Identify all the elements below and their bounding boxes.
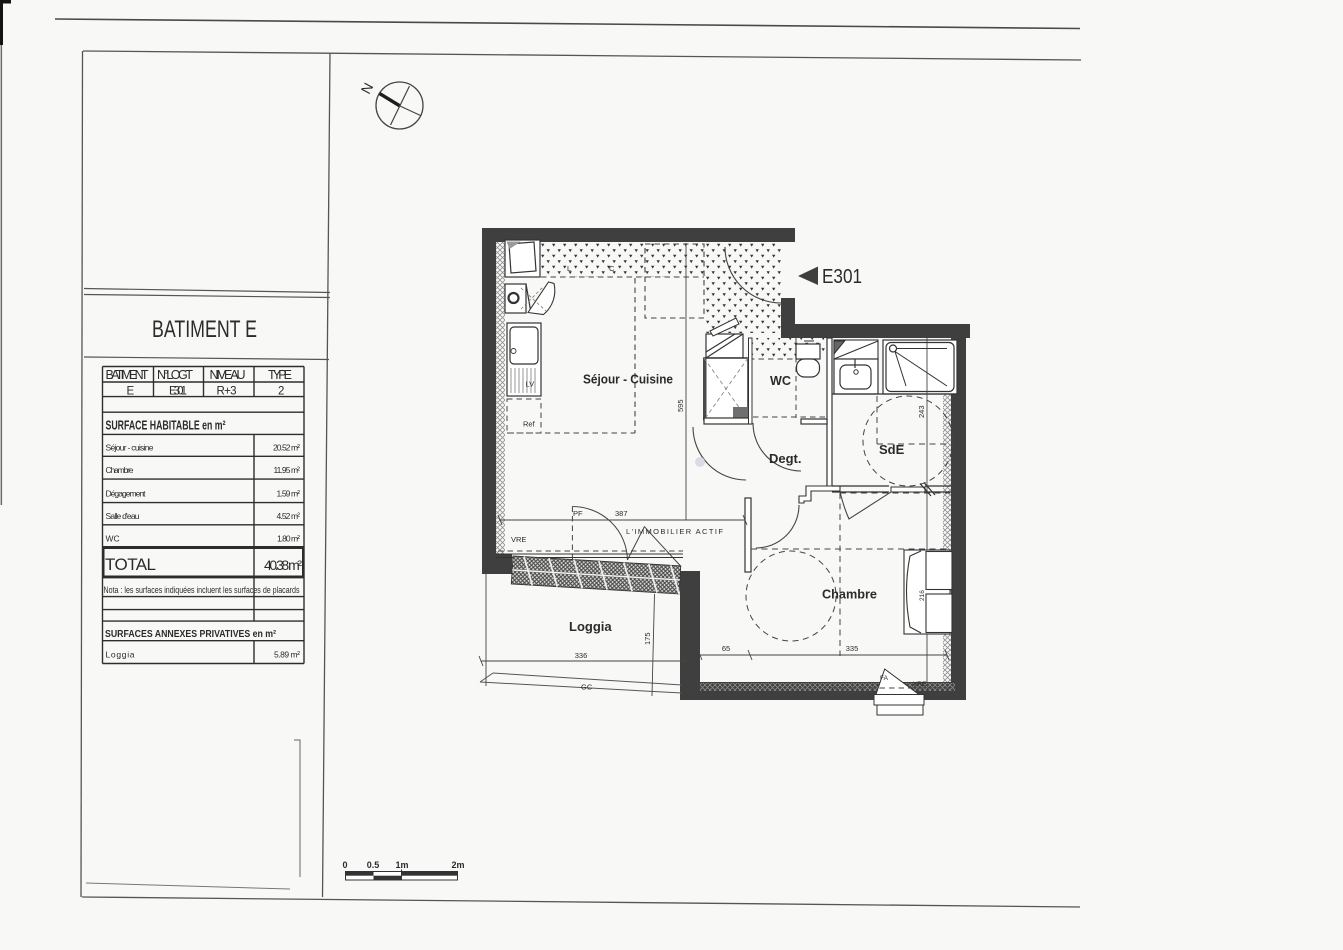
svg-text:20.52 m²: 20.52 m² [273,443,300,453]
svg-text:GC: GC [581,683,593,692]
svg-text:175: 175 [643,632,652,645]
svg-text:E301: E301 [169,386,187,398]
svg-text:387: 387 [615,509,628,518]
svg-text:Loggia: Loggia [106,650,135,660]
svg-text:WC: WC [106,534,120,544]
svg-text:Degt.: Degt. [769,451,802,466]
svg-text:E301: E301 [822,266,862,288]
svg-text:BATIMENT E: BATIMENT E [152,316,257,343]
svg-text:Dégagement: Dégagement [106,489,147,499]
svg-text:Salle d'eau: Salle d'eau [106,511,140,521]
svg-text:243: 243 [917,405,926,418]
svg-text:L: L [567,264,571,273]
svg-text:2m: 2m [451,860,464,870]
svg-text:R+3: R+3 [217,386,237,398]
svg-text:216: 216 [919,590,926,601]
svg-text:SURFACE HABITABLE en m²: SURFACE HABITABLE en m² [106,419,226,433]
svg-text:1.80 m²: 1.80 m² [277,534,300,544]
svg-text:NIVEAU: NIVEAU [210,368,246,382]
svg-text:4.52 m²: 4.52 m² [277,511,301,521]
svg-text:Loggia: Loggia [569,619,612,634]
svg-text:65: 65 [722,644,730,653]
svg-text:336: 336 [575,651,588,660]
svg-text:Chambre: Chambre [106,465,134,475]
svg-text:BATIMENT: BATIMENT [106,368,149,382]
svg-text:595: 595 [676,399,685,412]
svg-text:SURFACES ANNEXES PRIVATIVES en: SURFACES ANNEXES PRIVATIVES en m² [105,628,276,640]
svg-text:1.59 m²: 1.59 m² [277,489,301,499]
svg-text:FA: FA [880,675,889,682]
svg-text:Ref: Ref [523,420,536,429]
svg-text:LV: LV [526,380,535,389]
svg-text:Nota : les surfaces indiquées: Nota : les surfaces indiquées incluent l… [104,585,300,595]
svg-text:TYPE: TYPE [268,368,292,382]
svg-text:335: 335 [846,644,859,653]
svg-text:C: C [609,264,615,273]
svg-text:11.95 m²: 11.95 m² [274,465,301,475]
svg-text:PF: PF [573,509,583,518]
svg-text:5.89 m²: 5.89 m² [274,650,300,660]
svg-text:Séjour - cuisine: Séjour - cuisine [106,443,154,453]
svg-text:E: E [127,386,135,398]
svg-text:0.5: 0.5 [367,860,380,870]
svg-text:L'IMMOBILIER ACTIF: L'IMMOBILIER ACTIF [626,527,724,536]
svg-text:2: 2 [278,386,284,398]
svg-text:1m: 1m [395,860,408,870]
svg-text:Séjour - Cuisine: Séjour - Cuisine [583,372,673,387]
svg-text:VRE: VRE [913,681,927,688]
svg-text:WC: WC [770,374,791,388]
svg-text:Chambre: Chambre [822,587,877,602]
svg-text:TOTAL: TOTAL [105,555,156,574]
svg-text:VRE: VRE [511,535,526,544]
svg-text:0: 0 [342,860,347,870]
svg-text:40.38 m²: 40.38 m² [264,557,302,573]
svg-text:N°LOGT: N°LOGT [157,368,193,382]
